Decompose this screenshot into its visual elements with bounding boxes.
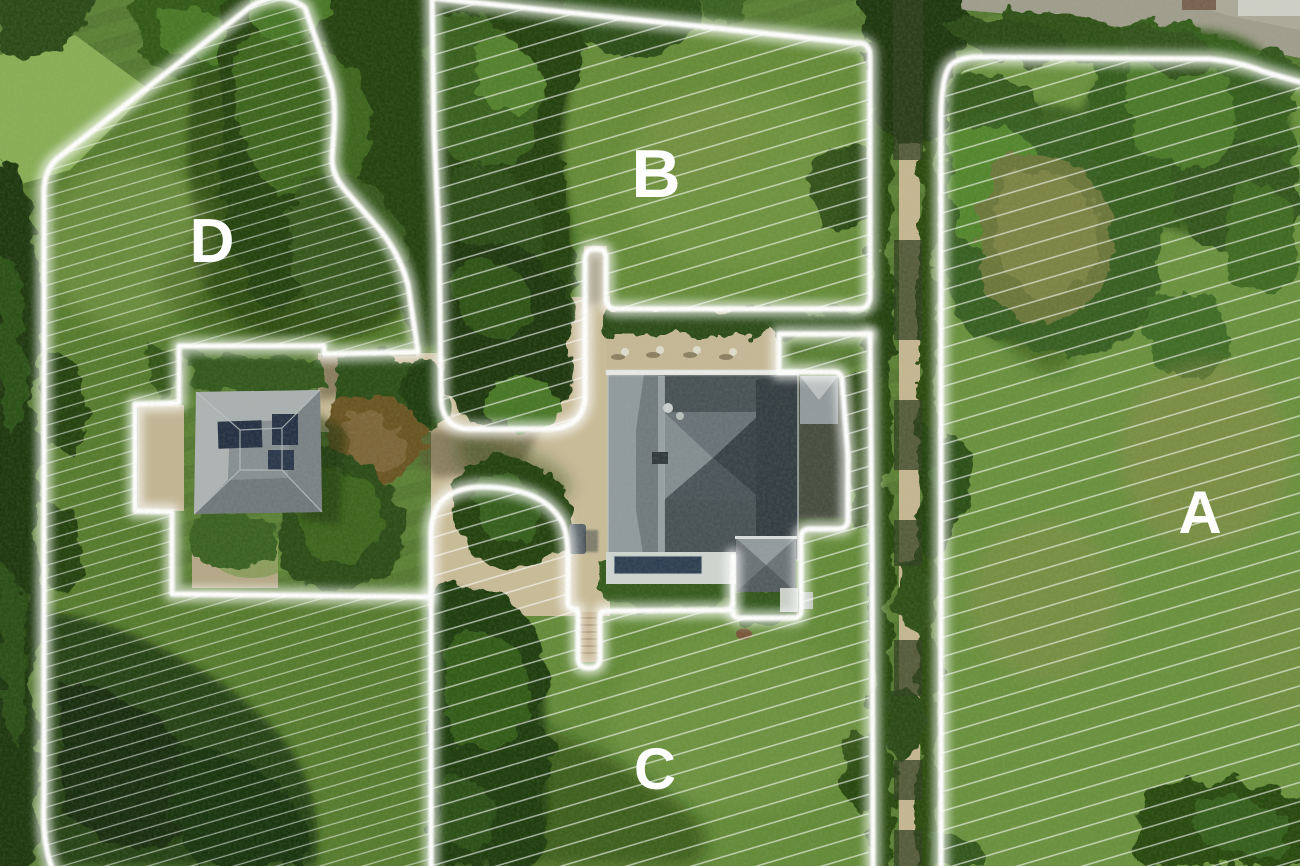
- svg-text:A: A: [1178, 479, 1221, 546]
- svg-text:B: B: [631, 136, 680, 212]
- svg-text:C: C: [634, 737, 676, 802]
- svg-text:D: D: [190, 207, 235, 276]
